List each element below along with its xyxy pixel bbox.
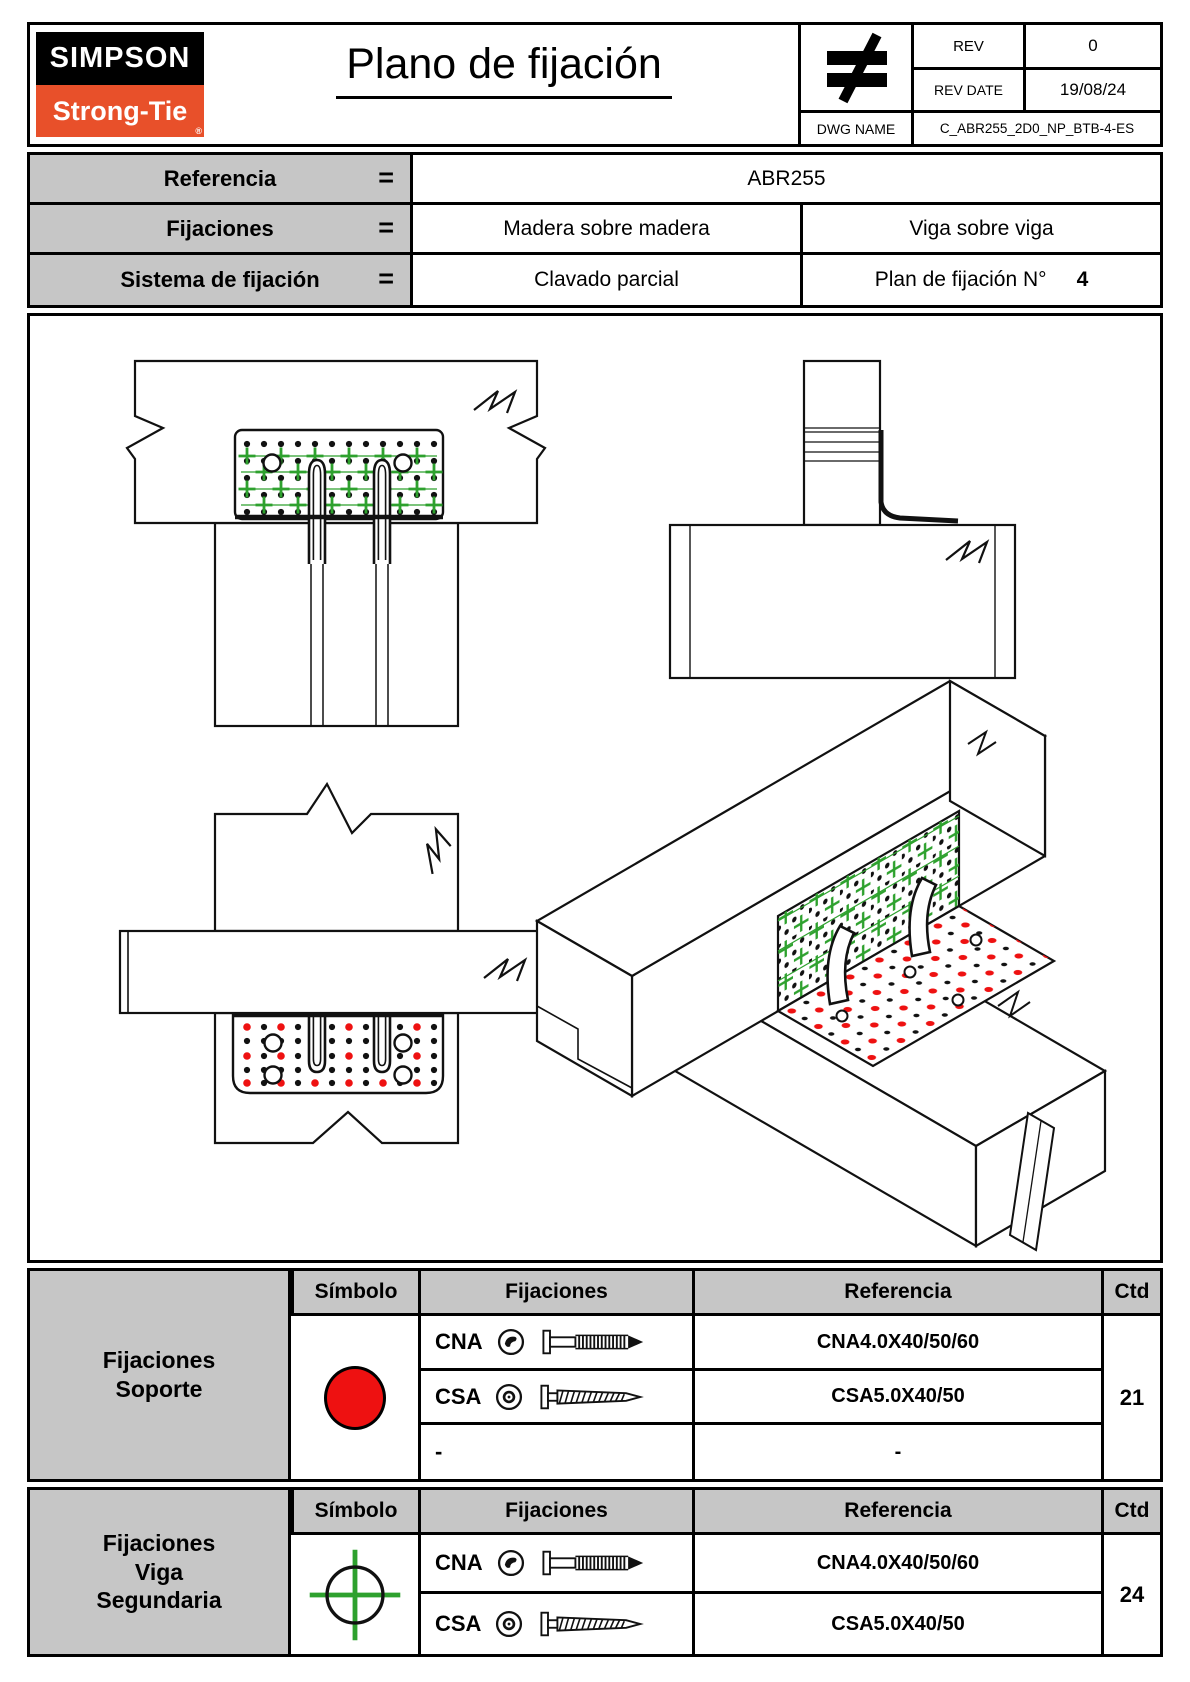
support-row-cna: CNA	[418, 1316, 692, 1371]
secondary-ref-csa: CSA5.0X40/50	[692, 1594, 1101, 1654]
reference-header-cell: Referencia	[692, 1490, 1101, 1535]
title-block: SIMPSON Strong-Tie ® Plano de fijación R…	[27, 22, 1163, 147]
not-equal-icon	[817, 31, 895, 105]
info-row3-value-b-cell: Plan de fijación N° 4	[803, 255, 1160, 305]
fastener-code: CSA	[435, 1384, 481, 1410]
secondary-ref-cna: CNA4.0X40/50/60	[692, 1535, 1101, 1594]
csa-screw-icon	[537, 1608, 655, 1640]
logo-simpson: SIMPSON	[36, 32, 204, 85]
csa-screw-icon	[537, 1381, 655, 1413]
symbol-header-cell: Símbolo	[291, 1490, 418, 1535]
fixing-plan-number: 4	[1077, 268, 1089, 292]
info-row2-value-a-cell: Madera sobre madera	[413, 205, 803, 255]
logo-strongtie-text: Strong-Tie	[53, 96, 188, 127]
fixings-header-cell: Fijaciones	[418, 1490, 692, 1535]
rev-label-cell: REV	[911, 25, 1023, 70]
info-row3-label: Sistema de fijación	[120, 267, 319, 293]
csa-head-icon	[494, 1609, 524, 1639]
rev-date-value: 19/08/24	[1060, 80, 1126, 100]
fixing-system-value: Clavado parcial	[534, 268, 679, 292]
simpson-strongtie-logo: SIMPSON Strong-Tie ®	[36, 32, 204, 137]
fastener-code: CNA	[435, 1550, 483, 1576]
info-row3-label-cell: Sistema de fijación =	[30, 255, 413, 305]
secondary-qty: 24	[1120, 1582, 1144, 1608]
equals-sign: =	[378, 263, 394, 294]
info-row3-value-a-cell: Clavado parcial	[413, 255, 803, 305]
fixing-plan-label: Plan de fijación N°	[875, 268, 1047, 292]
info-row2-label-cell: Fijaciones =	[30, 205, 413, 255]
rev-label: REV	[953, 38, 984, 55]
green-crosshair-symbol	[302, 1542, 408, 1648]
group-label-line: Fijaciones	[103, 1346, 215, 1375]
support-group-cell: Fijaciones Soporte	[30, 1271, 291, 1479]
support-ref-dash: -	[692, 1425, 1101, 1479]
info-row1-value-cell: ABR255	[413, 155, 1160, 205]
dwg-name-label-cell: DWG NAME	[798, 113, 911, 144]
csa-head-icon	[494, 1382, 524, 1412]
registered-mark: ®	[195, 126, 202, 136]
group-label-line: Viga	[135, 1558, 183, 1587]
support-ref-csa: CSA5.0X40/50	[692, 1371, 1101, 1425]
cna-head-icon	[496, 1548, 526, 1578]
secondary-qty-cell: 24	[1101, 1535, 1160, 1654]
reference-header-cell: Referencia	[692, 1271, 1101, 1316]
dwg-name-value-cell: C_ABR255_2D0_NP_BTB-4-ES	[911, 113, 1160, 144]
qty-header-cell: Ctd	[1101, 1271, 1160, 1316]
reference-value: ABR255	[747, 167, 825, 191]
group-label-line: Fijaciones	[103, 1529, 215, 1558]
secondary-row-cna: CNA	[418, 1535, 692, 1594]
equals-sign: =	[378, 162, 394, 193]
bottom-view-drawing	[120, 784, 553, 1143]
info-row2-value-b-cell: Viga sobre viga	[803, 205, 1160, 255]
cna-nail-icon	[539, 1547, 657, 1579]
rev-value: 0	[1088, 36, 1097, 56]
info-table: Referencia = ABR255 Fijaciones = Madera …	[27, 152, 1163, 308]
rev-date-value-cell: 19/08/24	[1023, 70, 1160, 113]
support-ref-cna: CNA4.0X40/50/60	[692, 1316, 1101, 1371]
front-view-drawing	[127, 361, 545, 726]
fastener-code: CSA	[435, 1611, 481, 1637]
dwg-name-label: DWG NAME	[817, 121, 896, 137]
secondary-group-cell: Fijaciones Viga Segundaria	[30, 1490, 291, 1654]
fastener-code: CNA	[435, 1329, 483, 1355]
symbol-header-cell: Símbolo	[291, 1271, 418, 1316]
side-view-drawing	[670, 361, 1015, 678]
support-qty-cell: 21	[1101, 1316, 1160, 1479]
secondary-fixings-table: Fijaciones Viga Segundaria Símbolo Fijac…	[27, 1487, 1163, 1657]
drawing-sheet: SIMPSON Strong-Tie ® Plano de fijación R…	[0, 0, 1190, 1682]
equals-sign: =	[378, 212, 394, 243]
fixings-header-cell: Fijaciones	[418, 1271, 692, 1316]
logo-strongtie: Strong-Tie ®	[36, 85, 204, 137]
support-row-dash: -	[418, 1425, 692, 1479]
dwg-name-value: C_ABR255_2D0_NP_BTB-4-ES	[940, 121, 1134, 136]
support-fixings-table: Fijaciones Soporte Símbolo Fijaciones Re…	[27, 1268, 1163, 1482]
info-row1-label-cell: Referencia =	[30, 155, 413, 205]
secondary-row-csa: CSA	[418, 1594, 692, 1654]
page-title: Plano de fijación	[336, 40, 672, 99]
fixings-type-value: Madera sobre madera	[503, 217, 710, 241]
beam-on-beam-value: Viga sobre viga	[909, 217, 1053, 241]
support-symbol-cell	[291, 1316, 418, 1479]
rev-value-cell: 0	[1023, 25, 1160, 70]
support-qty: 21	[1120, 1385, 1144, 1411]
isometric-view-drawing	[537, 681, 1105, 1250]
cna-head-icon	[496, 1327, 526, 1357]
secondary-symbol-cell	[291, 1535, 418, 1654]
not-equal-cell	[798, 25, 911, 113]
technical-drawings	[30, 316, 1160, 1260]
info-row2-label: Fijaciones	[166, 216, 274, 242]
group-label-line: Segundaria	[96, 1586, 221, 1615]
cna-nail-icon	[539, 1326, 657, 1358]
group-label-line: Soporte	[116, 1375, 203, 1404]
rev-date-label-cell: REV DATE	[911, 70, 1023, 113]
drawing-area	[27, 313, 1163, 1263]
info-row1-label: Referencia	[164, 166, 277, 192]
support-row-csa: CSA	[418, 1371, 692, 1425]
qty-header-cell: Ctd	[1101, 1490, 1160, 1535]
red-dot-symbol	[324, 1366, 386, 1430]
rev-date-label: REV DATE	[934, 82, 1003, 98]
